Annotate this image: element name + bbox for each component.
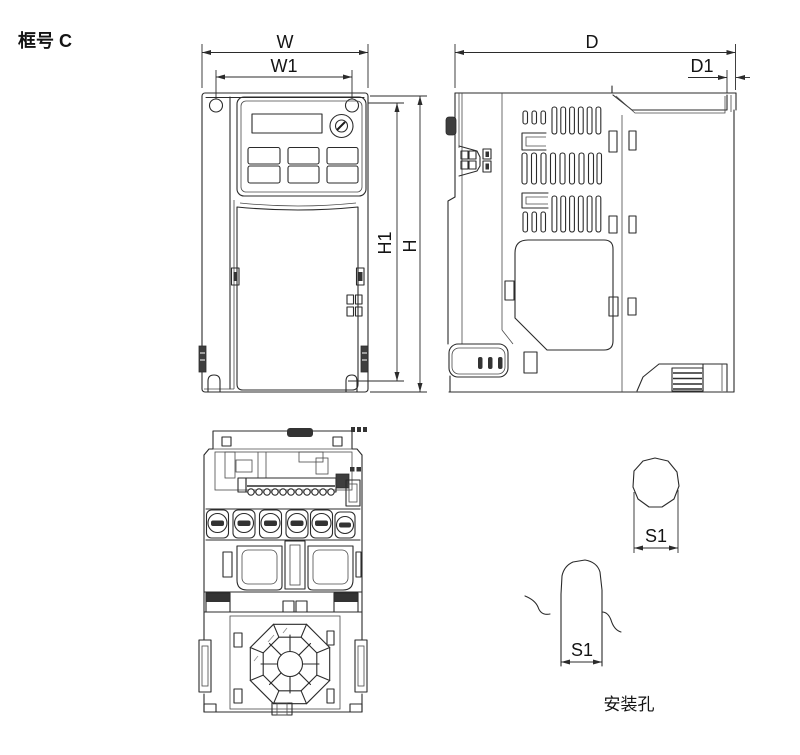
keypad-panel [237,97,366,196]
break-line-right [602,612,621,632]
terminal-molding [223,541,361,590]
vent-slots [522,107,602,232]
mounting-hole-detail-round: S1 [633,458,679,553]
dim-label-H1: H1 [375,231,395,254]
internal-structure [215,452,352,490]
power-terminal [260,510,282,538]
top-cap-bar [287,428,313,437]
mounting-hole-round-shape [633,458,679,507]
front-view [199,93,368,392]
front-bottom-slots [199,346,368,392]
power-terminal [233,510,255,538]
clip-band [204,592,362,612]
break-line-left [525,596,550,614]
mounting-hole-detail-slot: S1 [525,560,621,666]
keypad-button [248,166,280,183]
keypad-button [327,148,358,165]
fan-section [199,616,367,715]
dim-label-W: W [277,32,294,52]
side-connector [449,344,537,377]
dim-label-D: D [586,32,599,52]
frame-number-label: 框号 C [18,31,72,51]
keypad-button [327,166,358,183]
side-dimensions: D D1 [455,32,750,93]
power-terminal [286,510,308,538]
dim-label-S1-slot: S1 [571,640,593,660]
power-terminals [206,509,360,540]
keypad-button [248,148,280,165]
front-cover [232,203,365,390]
side-latch [459,146,491,176]
technical-drawing-page: 框号 C [0,0,800,755]
side-view [446,86,736,392]
fan-clip-left [199,640,211,692]
dim-label-S1-round: S1 [645,526,667,546]
mounting-slot-bottom-left [208,375,220,392]
side-mounting-foot [637,364,727,391]
fan-grille [250,624,329,703]
keypad-buttons [248,148,358,184]
knob-profile [446,117,456,135]
power-terminal [311,510,333,538]
keypad-display [252,114,322,133]
front-dimensions: W W1 H1 H [202,32,427,392]
side-top-rail [612,86,731,113]
side-panel [505,240,618,350]
mounting-hole-top-left [210,99,223,112]
power-terminal [207,510,229,538]
mounting-hole-caption: 安装孔 [604,695,655,714]
bottom-view [199,427,367,715]
control-terminal-strip [238,467,361,506]
dim-label-W1: W1 [271,56,298,76]
power-terminal [335,512,355,538]
dim-label-H: H [400,240,420,253]
keypad-button [288,148,319,165]
dim-label-D1: D1 [690,56,713,76]
keypad-button [288,166,319,183]
fan-clip-right [355,640,367,692]
dimension-diagram: 框号 C [0,0,800,755]
